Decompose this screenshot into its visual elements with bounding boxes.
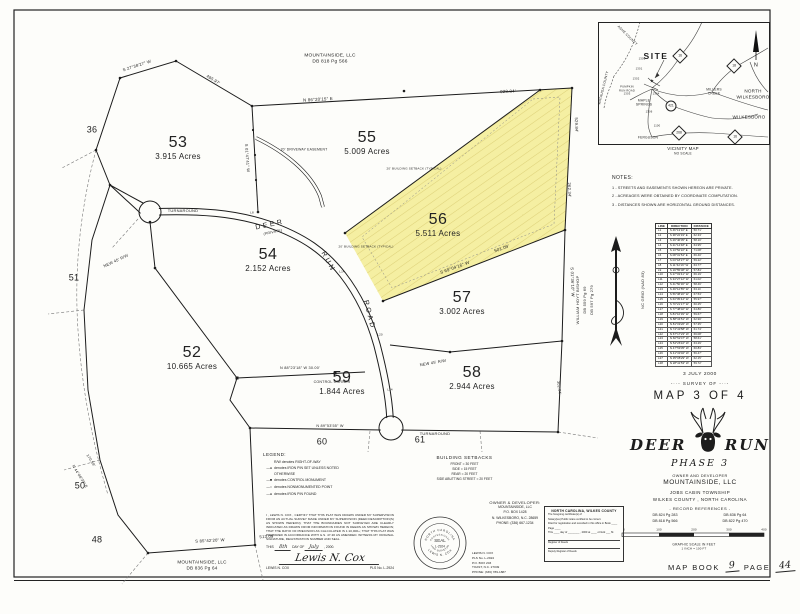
handwritten-month: July <box>305 544 324 551</box>
map-annotation: 262.34' <box>567 182 572 197</box>
lot-58-label: 582.944 Acres <box>449 365 495 391</box>
map-annotation: NEW 45' R/W <box>103 254 129 269</box>
owner-developer-label: OWNER AND DEVELOPER <box>630 474 770 478</box>
map-annotation: DB 836 Pg 64 <box>186 567 217 572</box>
legend-item: —●denotes IRON PIN FOUND <box>263 492 343 497</box>
map-annotation: N 89°53'55" W <box>316 425 343 429</box>
seal-bottom-text: LEWIS N. COX <box>427 548 453 557</box>
lot-number: 57 <box>439 290 485 307</box>
pin-symbol-icon: —● <box>263 466 272 477</box>
open-symbol-icon: —○ <box>263 485 272 490</box>
notes-title: NOTES: <box>612 175 768 181</box>
svg-text:LEWIS N. COX: LEWIS N. COX <box>427 548 453 557</box>
map-annotation: 61 <box>415 436 425 445</box>
lot-59-label: 591.844 Acres <box>319 370 365 396</box>
setback-item: SIDE ABUTTING STREET = 20 FEET <box>412 477 517 482</box>
map-annotation: N 86°20'15" E <box>303 97 333 103</box>
map-annotation: 170.59' <box>85 454 96 468</box>
legend-item: —●denotes IRON PIN SET UNLESS NOTED OTHE… <box>263 466 343 477</box>
map-annotation: 60 <box>317 438 327 447</box>
legend-item-text: denotes NONMONUMENTED POINT <box>274 485 332 490</box>
map-annotation: NO SCALE <box>674 152 692 155</box>
map-annotation: 50 <box>75 482 85 491</box>
map-annotation: NEW 45' R/W <box>419 359 446 368</box>
map-annotation: S 85°42'20" W <box>195 538 225 544</box>
owner-block-line: PHONE: (336) 667-1234 <box>484 521 546 526</box>
county-state: WILKES COUNTY , NORTH CAROLINA <box>630 497 770 502</box>
surveyor-address-block: LEWIS N. COXPLS No. L-2924P.O. BOX 203TO… <box>472 551 530 575</box>
title-block: 3 JULY 2000 -··- SURVEY OF -··- MAP 3 OF… <box>630 372 770 525</box>
subdivision-name: DEER RUN <box>630 404 770 454</box>
north-arrow-ornament <box>610 236 624 346</box>
line-table-cell: N 28°41'53" W <box>667 362 691 367</box>
scale-bar <box>622 533 764 537</box>
lot-acreage: 1.844 Acres <box>319 388 365 396</box>
map-annotation: DB 597 Pg 279 <box>590 285 594 315</box>
lot-acreage: 2.944 Acres <box>449 383 495 391</box>
map-book-number: 9 <box>724 559 739 572</box>
lot-number: 52 <box>167 345 217 362</box>
surveyor-signature: Lewis N. Cox <box>279 552 381 565</box>
line-table-cell: 59.72' <box>691 362 711 367</box>
legend-item-text: R/W denotes RIGHT-OF-WAY <box>274 460 321 465</box>
seal-inner-top-text: PROFESSIONAL <box>430 534 449 541</box>
setbacks-list: FRONT = 30 FEETSIDE = 15 FEETREAR = 20 F… <box>412 462 517 482</box>
pin-symbol-icon: —● <box>263 492 272 497</box>
note-item: 3 - DISTANCES SHOWN ARE HORIZONTAL GROUN… <box>612 201 768 209</box>
note-item: 1 - STREETS AND EASEMENTS SHOWN HEREON A… <box>612 184 768 192</box>
legend-title: LEGEND: <box>263 452 343 457</box>
subdivision-name-right: RUN <box>725 436 770 454</box>
seal-word: SEAL <box>434 538 446 543</box>
lot-57-label: 573.002 Acres <box>439 290 485 316</box>
surveyor-lines: LEWIS N. COXPLS No. L-2924P.O. BOX 203TO… <box>472 551 530 575</box>
map-annotation: S 27°38'27" W <box>122 59 151 72</box>
lot-acreage: 10.665 Acres <box>167 363 217 371</box>
plat-sheet: NORTH CAROLINA LEWIS N. COX PROFESSIONAL… <box>0 0 800 614</box>
rw-abbreviation <box>263 460 272 465</box>
map-annotation: 20' DRIVEWAY EASEMENT <box>281 148 328 151</box>
map-annotation: 529.84' <box>574 117 579 132</box>
map-annotation: ROAD <box>362 299 376 330</box>
legend-block: LEGEND: R/W denotes RIGHT-OF-WAY—●denote… <box>263 452 343 499</box>
certificate-date-line: THIS 8th DAY OF July , 2000. <box>266 544 394 551</box>
map-annotation: L14 <box>339 271 345 274</box>
deer-run-road <box>139 201 403 440</box>
map-annotation: S 69°04'16" W <box>440 261 471 276</box>
map-annotation: L8 <box>250 212 254 215</box>
map-annotation: 300 <box>726 529 732 532</box>
record-references-label: - RECORD REFERENCES - <box>630 506 770 511</box>
page-number: 44 <box>775 559 796 573</box>
seal-number: L-2924 <box>435 545 445 549</box>
map-annotation: (PRIVATE) <box>263 229 282 236</box>
map-annotation: RUN <box>320 250 337 273</box>
surveyor-pls-number: PLS No. L-2924 <box>370 566 394 570</box>
lot-acreage: 5.511 Acres <box>416 230 461 238</box>
record-refs: DB 824 Pg 283DB 836 Pg 64DB 818 Pg 566DB… <box>630 512 770 525</box>
map-annotation: DB 818 Pg 566 <box>312 61 347 66</box>
lot-acreage: 3.002 Acres <box>439 308 485 316</box>
lot-number: 56 <box>416 212 461 229</box>
lot-number: 53 <box>155 135 201 152</box>
map-annotation: 20' BUILDING SETBACK (TYPICAL) <box>386 168 441 171</box>
note-item: 2 - ACREAGES WERE OBTAINED BY COORDINATE… <box>612 192 768 200</box>
register-of-deeds-signature: Register of Deeds <box>548 540 620 545</box>
lot-54-label: 542.152 Acres <box>245 247 291 273</box>
lot-56-label: 565.511 Acres <box>416 212 461 238</box>
map-annotation: 20' BUILDING SETBACK (TYPICAL) <box>338 246 393 249</box>
map-annotation: 400 <box>761 529 767 532</box>
lot-acreage: 5.009 Acres <box>344 148 390 156</box>
map-annotation: 501.09' <box>494 244 510 254</box>
registration-line: This ____ day of ________ , 2000 at ____… <box>548 531 620 536</box>
handwritten-day: 8th <box>274 544 291 551</box>
lot-number: 58 <box>449 365 495 382</box>
svg-text:LAND SURVEYOR: LAND SURVEYOR <box>430 545 450 553</box>
registration-block: NORTH CAROLINA, WILKES COUNTY The forego… <box>544 506 624 562</box>
line-table-cell: L28 <box>656 362 668 367</box>
lot-53-label: 533.915 Acres <box>155 135 201 161</box>
lot-number: 59 <box>319 370 365 387</box>
map-number: MAP 3 OF 4 <box>630 390 770 402</box>
lot-acreage: 2.152 Acres <box>245 265 291 273</box>
record-reference: DB 822 Pg 470 <box>700 518 770 524</box>
legend-item-text: denotes IRON PIN SET UNLESS NOTED OTHERW… <box>274 466 343 477</box>
turnaround-circle-west <box>139 201 161 223</box>
lot-55-label: 555.009 Acres <box>344 130 390 156</box>
survey-of-label: -··- SURVEY OF -··- <box>630 381 770 386</box>
legend-item-text: denotes IRON PIN FOUND <box>274 492 316 497</box>
date-mid: DAY OF <box>292 545 304 549</box>
line-table: LINE DIRECTION DISTANCE L1S 46°13'10" E5… <box>655 223 712 367</box>
lot-52-label: 5210.665 Acres <box>167 345 217 371</box>
map-annotation: MOUNTAINSIDE, LLC <box>177 561 226 566</box>
square-symbol-icon: —■ <box>263 478 272 483</box>
setbacks-title: BUILDING SETBACKS <box>412 455 517 460</box>
page-label: PAGE <box>744 563 770 572</box>
map-annotation: 48 <box>92 536 102 545</box>
lot-number: 54 <box>245 247 291 264</box>
date-post: , 2000. <box>324 545 334 549</box>
map-annotation: L24 <box>387 389 393 392</box>
notes-list: 1 - STREETS AND EASEMENTS SHOWN HEREON A… <box>612 184 768 209</box>
map-book-line: MAP BOOK 9 PAGE 44 <box>668 560 795 572</box>
phase-label: PHASE 3 <box>630 458 770 469</box>
building-setbacks-block: BUILDING SETBACKS FRONT = 30 FEETSIDE = … <box>412 455 517 482</box>
surveyor-name: LEWIS N. COX <box>266 566 289 570</box>
map-annotation: 495.97' <box>205 74 220 85</box>
certificate-text: I , LEWIS N. COX , CERTIFY THAT THIS PLA… <box>266 513 394 541</box>
surveyor-address-line: PHONE: (336) 789-1887 <box>472 570 530 575</box>
lot-acreage: 3.915 Acres <box>155 153 201 161</box>
map-annotation: DB 559 Pg 69 <box>583 286 587 313</box>
owner-developer-block: OWNER & DEVELOPER: MOUNTAINSIDE, LLCP.O.… <box>484 500 546 527</box>
owner-name: MOUNTAINSIDE, LLC <box>630 479 770 486</box>
owner-block-lines: MOUNTAINSIDE, LLCP.O. BOX 1428N. WILKESB… <box>484 505 546 527</box>
legend-items: R/W denotes RIGHT-OF-WAY—●denotes IRON P… <box>263 460 343 498</box>
date-pre: THIS <box>266 545 274 549</box>
registration-line: Filed for registration and recorded in t… <box>548 522 620 531</box>
map-annotation: N 88°23'18" W 30.00' <box>280 367 320 371</box>
record-reference: DB 818 Pg 566 <box>630 518 700 524</box>
deputy-register-signature: Deputy Register of Deeds <box>548 548 620 553</box>
map-annotation: 1 INCH = 100 FT <box>682 548 707 551</box>
map-annotation: 36 <box>87 126 97 135</box>
map-annotation: 928.84' <box>500 90 516 95</box>
map-annotation: TURNAROUND <box>168 209 198 213</box>
line-table-row: L28N 28°41'53" W59.72' <box>656 362 712 367</box>
notes-block: NOTES: 1 - STREETS AND EASEMENTS SHOWN H… <box>612 175 768 209</box>
survey-date: 3 JULY 2000 <box>630 372 770 377</box>
legend-item: —○denotes NONMONUMENTED POINT <box>263 485 343 490</box>
map-annotation: L20 <box>377 334 383 337</box>
township: JOBS CABIN TOWNSHIP <box>630 490 770 495</box>
map-annotation: WILLIAM HOYT BISHOP <box>576 276 580 325</box>
svg-text:NORTH CAROLINA: NORTH CAROLINA <box>424 528 456 541</box>
map-annotation: 302.04' <box>555 381 561 395</box>
vicinity-map <box>598 22 770 145</box>
map-annotation: NC GRID (NAD 83) <box>641 271 645 309</box>
legend-item: —■denotes CONTROL MONUMENT <box>263 478 343 483</box>
legend-item: R/W denotes RIGHT-OF-WAY <box>263 460 343 465</box>
surveyor-seal: NORTH CAROLINA LEWIS N. COX PROFESSIONAL… <box>414 517 466 569</box>
turnaround-circle-south <box>379 416 403 440</box>
map-annotation: S 01°47'41" W <box>244 144 250 173</box>
control-monument <box>236 377 239 380</box>
map-annotation: 51 <box>69 274 79 283</box>
line-table-body: L1S 46°13'10" E50.71'L2S 38°22'33" E62.3… <box>656 229 712 367</box>
map-annotation: 100 <box>656 529 662 532</box>
seal-top-text: NORTH CAROLINA <box>424 528 456 541</box>
svg-text:PROFESSIONAL: PROFESSIONAL <box>430 534 449 541</box>
map-annotation: S 01°36'10" W <box>569 267 574 297</box>
legend-item-text: denotes CONTROL MONUMENT <box>274 478 326 483</box>
seal-inner-bottom-text: LAND SURVEYOR <box>430 545 450 553</box>
map-book-label: MAP BOOK <box>668 563 720 572</box>
lot-number: 55 <box>344 130 390 147</box>
map-annotation: 200 <box>691 529 697 532</box>
subdivision-name-left: DEER <box>630 436 686 454</box>
surveyor-certificate: I , LEWIS N. COX , CERTIFY THAT THIS PLA… <box>266 513 394 570</box>
